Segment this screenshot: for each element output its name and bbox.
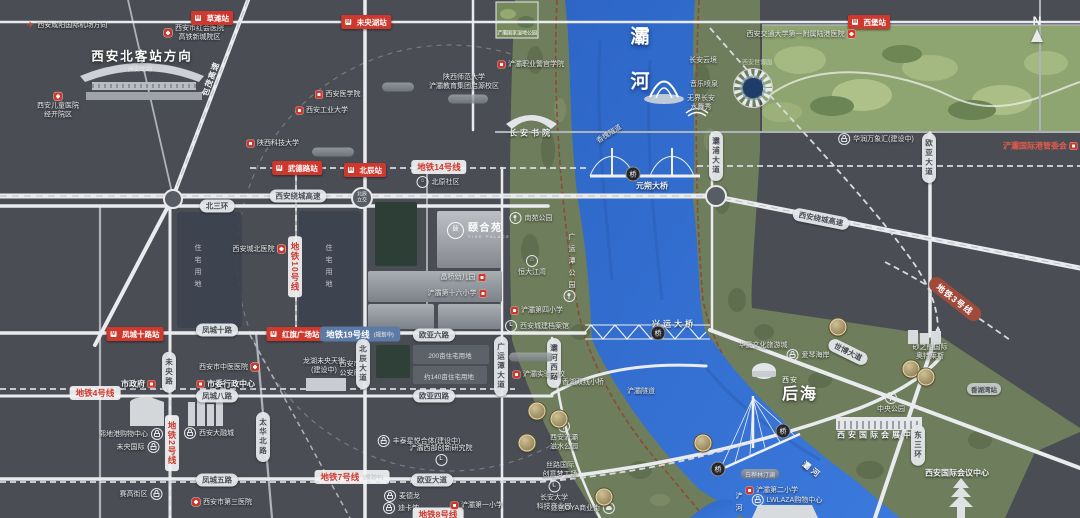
lic-icon bbox=[548, 480, 560, 492]
ouya-avenue-north-text: 欧亚大道 bbox=[924, 139, 935, 177]
bapu-avenue: 灞浦大道 bbox=[709, 131, 723, 181]
children-hospital-line-0: 西安儿童医院 bbox=[37, 101, 79, 110]
xian-technological-university-text: 西安工业大学 bbox=[306, 105, 348, 115]
emboss-1 bbox=[382, 83, 414, 92]
fengcheng-8-road-text: 凤城八路 bbox=[202, 391, 232, 402]
station-wudelu-text: 武德路站 bbox=[288, 163, 318, 174]
tcm-hospital: 西安市中医医院 bbox=[199, 362, 259, 372]
bahe-river-label-2-text: 灞河 bbox=[800, 459, 824, 481]
weiyang-road: 未央路 bbox=[162, 352, 176, 393]
zishui-park-line-0: 西安浐灞 bbox=[550, 433, 578, 442]
saigao-block-text: 赛高街区 bbox=[120, 489, 148, 499]
bapu-avenue-text: 灞浦大道 bbox=[711, 137, 722, 175]
chengbei-hospital: 西安城北医院 bbox=[233, 244, 286, 254]
bag-icon bbox=[752, 494, 764, 506]
north-station-name-text: 西安北站 bbox=[128, 65, 152, 74]
houhai-title-line-1: 后海 bbox=[782, 385, 818, 406]
school-icon bbox=[148, 381, 155, 388]
chengbei-hospital-text: 西安城北医院 bbox=[233, 244, 275, 254]
fengcheng-5-road-text: 凤城五路 bbox=[202, 475, 232, 486]
bridge-badge-1: 桥 bbox=[626, 167, 641, 182]
children-hospital: 西安儿童医院经开院区 bbox=[37, 92, 79, 119]
nanyuan-park: 南苑公园 bbox=[510, 212, 553, 224]
port-committee-text: 浐灞国际港管委会 bbox=[1003, 141, 1067, 152]
ring-expressway-west-text: 西安绕城高速 bbox=[276, 191, 321, 202]
huaxia-cultural-town-text: 华夏文化旅游城 bbox=[739, 340, 788, 350]
municipal-admin-center: 市委行政中心 bbox=[197, 379, 255, 390]
xian-medical-college-text: 西安医学院 bbox=[326, 89, 361, 99]
tcm-hospital-text: 西安市中医医院 bbox=[199, 362, 248, 372]
mixc-mall-text: 华润万象汇(建设中) bbox=[853, 134, 914, 144]
houhai-title: 西安后海 bbox=[782, 376, 818, 406]
north-3rd-ring-text: 北三环 bbox=[206, 201, 229, 212]
bag-icon bbox=[151, 428, 163, 440]
school-icon bbox=[746, 487, 753, 494]
station-hongqi-square: 红旗广场站 bbox=[267, 327, 324, 341]
project-name-en: YIHE PALACE bbox=[468, 235, 511, 239]
location-map: 西安咸阳国际机场方向西安市红会医院高铁新城院区草滩站未央湖站西堡站西安北客站方向… bbox=[0, 0, 1080, 518]
beichen-avenue-text: 北辰大道 bbox=[358, 345, 369, 383]
north-station-direction-text: 西安北客站方向 bbox=[91, 46, 193, 65]
shaanxi-normal-univ: 陕西师范大学浐灞教育集团启源校区 bbox=[429, 73, 499, 91]
ouya-6-road-text: 欧亚六路 bbox=[419, 330, 449, 341]
station-weiyanghu-text: 未央湖站 bbox=[357, 17, 387, 28]
port-committee: 浐灞国际港管委会 bbox=[1003, 141, 1077, 152]
station-caotan-text: 草滩站 bbox=[207, 13, 230, 24]
expo-avenue-text: 世博大道 bbox=[832, 340, 864, 363]
ouya-avenue-north: 欧亚大道 bbox=[922, 133, 936, 183]
metro-line-7-tag: (规划中) bbox=[363, 473, 383, 481]
taihua-north-road-text: 太华北路 bbox=[258, 418, 269, 456]
bridge-badge-2: 桥 bbox=[651, 326, 666, 341]
project-logo: 颐 颐合苑 YIHE PALACE bbox=[447, 222, 511, 239]
gold-badge-2 bbox=[551, 411, 568, 428]
station-wudelu: 武德路站 bbox=[272, 161, 322, 175]
baomao-expressway-text: 包茂高速 bbox=[200, 60, 223, 98]
station-weiyanghu: 未央湖站 bbox=[341, 15, 391, 29]
bag-icon bbox=[378, 435, 390, 447]
wujie-changan-show-line-0: 无界长安 bbox=[687, 94, 715, 103]
honghui-hospital-line-1: 高铁新城院区 bbox=[175, 33, 224, 42]
north-station-direction: 西安北客站方向 bbox=[91, 46, 193, 65]
ouya-avenue: 欧亚大道 bbox=[411, 474, 453, 487]
station-hongqi-square-text: 红旗广场站 bbox=[282, 329, 320, 340]
expo-park-name: 西安世博园 bbox=[742, 58, 772, 67]
children-hospital-line-1: 经开院区 bbox=[37, 111, 79, 120]
gold-badge-5 bbox=[830, 319, 847, 336]
baihualin-tinglan-text: 白桦林汀澜 bbox=[745, 470, 775, 479]
tree-icon bbox=[564, 290, 576, 302]
zhaoshang-plot bbox=[509, 353, 553, 362]
home-icon bbox=[417, 176, 429, 188]
bridge-badge-4-text: 桥 bbox=[715, 464, 722, 474]
urban-archives: 西安城建档案馆 bbox=[505, 320, 569, 332]
lic-icon bbox=[435, 454, 447, 466]
guangyuntan-avenue-text: 广运潭大道 bbox=[496, 342, 507, 390]
chanba-experimental-school: 浐灞实验学校 bbox=[513, 369, 565, 379]
east-3rd-ring-text: 东三环 bbox=[913, 431, 924, 460]
beichen-interchange-line-1: 立交 bbox=[357, 198, 367, 204]
bridge-badge-4: 桥 bbox=[711, 462, 726, 477]
chanba-no1-primary-text: 浐灞第一小学 bbox=[461, 500, 503, 510]
xinghuai-tunnel: 香槐隧道 bbox=[595, 122, 624, 146]
bag-icon bbox=[148, 441, 160, 453]
compass-text: N bbox=[1033, 14, 1042, 28]
plot-200mu: 200亩住宅用地 bbox=[428, 350, 471, 360]
bahe-west-road: 灞河西路 bbox=[547, 338, 561, 388]
bag-icon bbox=[184, 427, 196, 439]
intl-conference-center: 西安国际会议中心 bbox=[925, 468, 989, 479]
xidigang-mall: 熙地港购物中心 bbox=[99, 428, 163, 440]
school-icon bbox=[480, 290, 487, 297]
plane-icon bbox=[27, 21, 35, 30]
chanba-no4-primary: 浐灞第四小学 bbox=[511, 305, 563, 315]
plot-200mu-text: 200亩住宅用地 bbox=[428, 350, 471, 360]
metro-line-3: 地铁3号线 bbox=[926, 274, 984, 324]
metro-line-3-text: 地铁3号线 bbox=[934, 281, 976, 317]
ring-expressway-east: 西安绕城高速 bbox=[792, 207, 850, 231]
darongcheng-mall: 西安大融城 bbox=[184, 427, 234, 439]
chanba-west-institute: 浐灞西部创新研究院 bbox=[410, 444, 473, 466]
north-3rd-ring: 北三环 bbox=[200, 200, 235, 213]
project-name: 颐合苑 bbox=[468, 223, 511, 234]
city-government: 市政府 bbox=[121, 379, 155, 390]
expo-park-name-text: 西安世博园 bbox=[742, 58, 772, 67]
chanba-tunnel-text: 浐灞隧道 bbox=[627, 386, 655, 396]
central-park-line-0: 中央公园 bbox=[877, 405, 905, 414]
residential-zone-1-text: 住宅用地 bbox=[192, 244, 202, 292]
shaanxi-ust: 陕西科技大学 bbox=[247, 138, 299, 148]
school-icon bbox=[498, 61, 505, 68]
plot-140mu: 约140亩住宅用地 bbox=[424, 371, 474, 381]
bridge-badge-2-text: 桥 bbox=[655, 328, 662, 338]
taihua-north-road: 太华北路 bbox=[256, 412, 270, 462]
school-icon bbox=[247, 140, 254, 147]
metro-shop: 麦德龙 bbox=[384, 490, 420, 502]
bahe-river-title: 灞河 bbox=[630, 25, 649, 94]
chanhe-river-label: 浐河 bbox=[733, 492, 743, 516]
houhai-title-line-0: 西安 bbox=[782, 376, 798, 385]
ouya-6-road: 欧亚六路 bbox=[413, 329, 455, 342]
metro-line-4: 地铁4号线 bbox=[70, 386, 121, 400]
gold-badge-1 bbox=[529, 403, 546, 420]
municipal-admin-center-text: 市委行政中心 bbox=[207, 379, 255, 390]
wujie-changan-show-line-1: 水舞秀 bbox=[687, 103, 715, 112]
bag-icon bbox=[383, 502, 395, 514]
cross-icon bbox=[278, 245, 286, 253]
bag-icon bbox=[838, 133, 850, 145]
ring-expressway-east-text: 西安绕城高速 bbox=[798, 209, 844, 228]
fengcheng-8-road: 凤城八路 bbox=[196, 390, 238, 403]
station-caotan: 草滩站 bbox=[191, 11, 233, 25]
beiyuan-community-text: 北原社区 bbox=[432, 177, 460, 187]
guangyuntan-park-icon bbox=[564, 290, 579, 302]
wetland-park-caption: 浐灞国家湿地公园 bbox=[497, 30, 537, 37]
station-fengchengshilu: 凤城十路站 bbox=[107, 327, 164, 341]
metro-line-2-text: 地铁2号线 bbox=[166, 421, 178, 465]
plot-140mu-text: 约140亩住宅用地 bbox=[424, 371, 474, 381]
chanba-no1-primary: 浐灞第一小学 bbox=[451, 500, 503, 510]
hengda-jiangwan: 恒大江湾 bbox=[518, 255, 546, 277]
emboss-2 bbox=[448, 95, 488, 104]
fengcheng-10-road: 凤城十路 bbox=[196, 324, 238, 337]
gold-badge-7 bbox=[918, 369, 935, 386]
yuanshuo-bridge-text: 元朔大桥 bbox=[636, 181, 668, 192]
cross-icon bbox=[164, 29, 172, 37]
station-xianghuwan-text: 香湖湾站 bbox=[971, 384, 997, 394]
zishui-park-line-1: 滋水公园 bbox=[550, 443, 578, 452]
weiyang-road-text: 未央路 bbox=[164, 358, 175, 387]
guangyuntan-avenue: 广运潭大道 bbox=[494, 336, 508, 396]
yuanshuo-bridge: 元朔大桥 bbox=[636, 181, 668, 192]
school-icon bbox=[513, 371, 520, 378]
station-xianghuwan: 香湖湾站 bbox=[967, 383, 1001, 395]
weiyang-international: 未央国际 bbox=[117, 441, 160, 453]
changan-cloud: 长安云境 bbox=[689, 55, 717, 65]
bahe-river-title-line-1: 河 bbox=[630, 70, 649, 95]
gold-badge-3 bbox=[519, 435, 536, 452]
lwlaza-mall: LWLAZA购物中心 bbox=[752, 494, 823, 506]
lic-icon bbox=[505, 320, 517, 332]
school-icon bbox=[479, 274, 486, 281]
station-fengchengshilu-text: 凤城十路站 bbox=[122, 329, 160, 340]
aegean-coast: 爱琴海岸 bbox=[787, 349, 830, 361]
city-government-text: 市政府 bbox=[121, 379, 145, 390]
bag-icon bbox=[787, 349, 799, 361]
fengcheng-5-road: 凤城五路 bbox=[196, 474, 238, 487]
honghui-hospital-line-0: 西安市红会医院 bbox=[175, 24, 224, 33]
changan-academy: 长安书院 bbox=[509, 128, 553, 139]
guangyuntan-park: 广运潭公园 bbox=[566, 233, 576, 293]
cross-icon bbox=[848, 30, 856, 38]
chanba-no16-primary: 浐灞第十六小学 bbox=[428, 288, 487, 298]
bahe-river-label-2: 灞河 bbox=[800, 459, 824, 481]
nanyuan-park-text: 南苑公园 bbox=[525, 213, 553, 223]
silk-road-dream-works: 丝路国际创意梦工场 bbox=[543, 461, 578, 479]
home-icon bbox=[526, 255, 538, 267]
metro-line-19-tag: (规划中) bbox=[374, 330, 394, 338]
oya-commercial-street-text: 途创OYA商业街 bbox=[551, 503, 600, 513]
bahe-river-title-line-0: 灞 bbox=[630, 25, 649, 50]
police-vocational-college: 浐灞职业警官学院 bbox=[498, 59, 564, 69]
emboss-3 bbox=[312, 148, 354, 157]
tree-icon bbox=[510, 212, 522, 224]
central-park: 中央公园 bbox=[877, 392, 905, 414]
chanba-no16-primary-text: 浐灞第十六小学 bbox=[428, 288, 477, 298]
aegean-coast-text: 爱琴海岸 bbox=[802, 350, 830, 360]
chanba-west-institute-line-0: 浐灞西部创新研究院 bbox=[410, 444, 473, 453]
metro-line-10: 地铁10号线 bbox=[288, 236, 302, 297]
intl-conference-center-text: 西安国际会议中心 bbox=[925, 468, 989, 479]
bag-icon bbox=[384, 490, 396, 502]
twin-bridge-text: 香湖双线小桥 bbox=[562, 377, 604, 387]
cross-icon bbox=[54, 92, 62, 100]
chanba-no4-primary-text: 浐灞第四小学 bbox=[521, 305, 563, 315]
project-logo-icon: 颐 bbox=[447, 222, 464, 239]
ouya-4-road: 欧亚四路 bbox=[413, 390, 455, 403]
sasseur-outlets: 砂之船国际奥特莱斯 bbox=[913, 343, 948, 361]
metro-line-7-text: 地铁7号线 bbox=[321, 471, 360, 483]
expo-avenue: 世博大道 bbox=[826, 337, 869, 367]
ring-expressway-west: 西安绕城高速 bbox=[270, 190, 327, 203]
silk-road-dream-works-line-1: 创意梦工场 bbox=[543, 470, 578, 479]
north-station-name: 西安北站 bbox=[128, 65, 152, 74]
beichen-avenue: 北辰大道 bbox=[356, 339, 370, 389]
east-3rd-ring: 东三环 bbox=[911, 425, 925, 466]
jiaotong-univ-hospital-text: 西安交通大学第一附属陆港医院 bbox=[747, 29, 845, 39]
ouya-4-road-text: 欧亚四路 bbox=[419, 391, 449, 402]
metro-line-10-text: 地铁10号线 bbox=[289, 242, 301, 291]
music-fountain-text: 音乐喷泉 bbox=[690, 79, 718, 89]
metro-line-4-text: 地铁4号线 bbox=[76, 387, 115, 399]
chanba-experimental-school-text: 浐灞实验学校 bbox=[523, 369, 565, 379]
changan-cloud-text: 长安云境 bbox=[689, 55, 717, 65]
cross-icon bbox=[251, 363, 259, 371]
residential-zone-2: 住宅用地 bbox=[323, 244, 333, 292]
guangyuntan-park-text: 广运潭公园 bbox=[566, 233, 576, 293]
wujie-changan-show: 无界长安水舞秀 bbox=[687, 94, 715, 112]
urban-archives-text: 西安城建档案馆 bbox=[520, 321, 569, 331]
xian-technological-university: 西安工业大学 bbox=[296, 105, 348, 115]
school-icon bbox=[451, 502, 458, 509]
sasseur-outlets-line-1: 奥特莱斯 bbox=[913, 352, 948, 361]
third-hospital-text: 西安市第三医院 bbox=[203, 497, 252, 507]
cross-icon bbox=[192, 498, 200, 506]
xinghuai-tunnel-text: 香槐隧道 bbox=[595, 122, 624, 146]
station-xipu-text: 西堡站 bbox=[864, 17, 887, 28]
mixc-mall: 华润万象汇(建设中) bbox=[838, 133, 914, 145]
huaxia-cultural-town: 华夏文化旅游城 bbox=[739, 340, 788, 350]
station-beichen: 北辰站 bbox=[344, 163, 386, 177]
bridge-badge-3: 桥 bbox=[776, 424, 791, 439]
shaanxi-normal-univ-line-1: 浐灞教育集团启源校区 bbox=[429, 82, 499, 91]
twin-bridge: 香湖双线小桥 bbox=[562, 377, 604, 387]
school-icon bbox=[316, 91, 323, 98]
jiaotong-univ-hospital: 西安交通大学第一附属陆港医院 bbox=[747, 29, 856, 39]
wetland-park-caption-text: 浐灞国家湿地公园 bbox=[497, 30, 537, 37]
bridge-badge-1-text: 桥 bbox=[630, 169, 637, 179]
metro-line-14-text: 地铁14号线 bbox=[417, 161, 460, 173]
saigao-block: 赛高街区 bbox=[120, 488, 163, 500]
compass: N bbox=[1031, 14, 1043, 42]
ouya-avenue-text: 欧亚大道 bbox=[417, 475, 447, 486]
chanba-tunnel: 浐灞隧道 bbox=[627, 386, 655, 396]
darongcheng-mall-text: 西安大融城 bbox=[199, 428, 234, 438]
weiyang-international-text: 未央国际 bbox=[117, 442, 145, 452]
jingqiao-kindergarten: 晶桥幼儿园 bbox=[441, 272, 486, 282]
sasseur-outlets-line-0: 砂之船国际 bbox=[913, 343, 948, 352]
jingqiao-kindergarten-text: 晶桥幼儿园 bbox=[441, 272, 476, 282]
station-xipu: 西堡站 bbox=[848, 15, 890, 29]
gold-badge-4 bbox=[596, 489, 613, 506]
hengda-jiangwan-line-0: 恒大江湾 bbox=[518, 268, 546, 277]
lwlaza-mall-text: LWLAZA购物中心 bbox=[767, 495, 823, 505]
school-icon bbox=[197, 381, 204, 388]
music-fountain: 音乐喷泉 bbox=[690, 79, 718, 89]
tree-icon bbox=[885, 392, 897, 404]
school-icon bbox=[1070, 143, 1077, 150]
police-vocational-college-text: 浐灞职业警官学院 bbox=[508, 59, 564, 69]
metro-line-7: 地铁7号线(规划中) bbox=[315, 470, 390, 484]
gold-badge-8 bbox=[695, 435, 712, 452]
bag-icon bbox=[151, 488, 163, 500]
beichen-interchange: 北辰立交 bbox=[357, 192, 367, 204]
school-icon bbox=[511, 307, 518, 314]
metro-line-2: 地铁2号线 bbox=[165, 415, 179, 471]
xian-medical-college: 西安医学院 bbox=[316, 89, 361, 99]
school-icon bbox=[296, 107, 303, 114]
shaanxi-ust-text: 陕西科技大学 bbox=[257, 138, 299, 148]
labels-layer: 西安咸阳国际机场方向西安市红会医院高铁新城院区草滩站未央湖站西堡站西安北客站方向… bbox=[0, 0, 1080, 518]
changan-academy-text: 长安书院 bbox=[509, 128, 553, 139]
bridge-badge-3-text: 桥 bbox=[780, 426, 787, 436]
xidigang-mall-text: 熙地港购物中心 bbox=[99, 429, 148, 439]
silk-road-dream-works-line-0: 丝路国际 bbox=[543, 461, 578, 470]
metro-shop-text: 麦德龙 bbox=[399, 491, 420, 501]
airport-direction: 西安咸阳国际机场方向 bbox=[27, 20, 108, 30]
baomao-expressway: 包茂高速 bbox=[200, 60, 223, 98]
airport-direction-text: 西安咸阳国际机场方向 bbox=[37, 20, 107, 30]
honghui-hospital: 西安市红会医院高铁新城院区 bbox=[164, 24, 224, 42]
chanhe-river-label-text: 浐河 bbox=[733, 492, 743, 516]
beiyuan-community: 北原社区 bbox=[417, 176, 460, 188]
residential-zone-2-text: 住宅用地 bbox=[323, 244, 333, 292]
baihualin-tinglan: 白桦林汀澜 bbox=[741, 469, 779, 479]
fengcheng-10-road-text: 凤城十路 bbox=[202, 325, 232, 336]
shaanxi-normal-univ-line-0: 陕西师范大学 bbox=[429, 73, 499, 82]
metro-line-14: 地铁14号线 bbox=[411, 160, 466, 174]
station-beichen-text: 北辰站 bbox=[360, 165, 383, 176]
third-hospital: 西安市第三医院 bbox=[192, 497, 252, 507]
residential-zone-1: 住宅用地 bbox=[192, 244, 202, 292]
